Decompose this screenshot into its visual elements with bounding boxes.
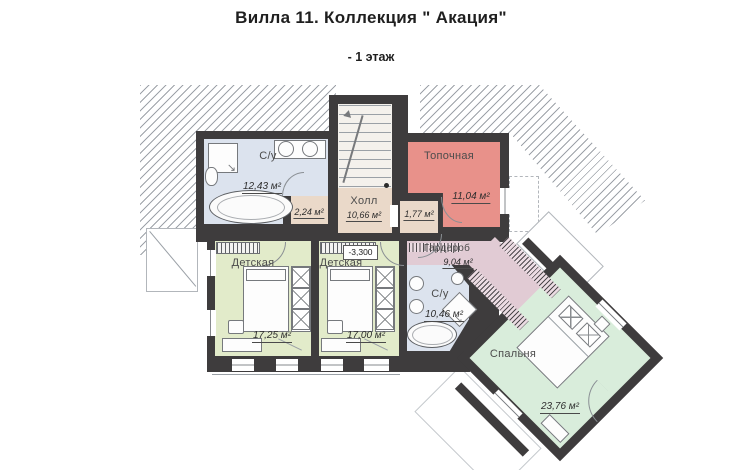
pillow bbox=[246, 269, 286, 281]
chair bbox=[327, 320, 343, 334]
window-sill-line bbox=[212, 374, 400, 375]
window bbox=[276, 359, 298, 371]
toilet-icon bbox=[205, 167, 218, 186]
sink-icon bbox=[302, 141, 318, 157]
bathtub-icon bbox=[407, 321, 457, 348]
window bbox=[205, 310, 216, 336]
wardrobe-cabinet bbox=[375, 266, 395, 332]
room-area-closet-small: 2,24 м² bbox=[293, 207, 324, 219]
door-opening-hall-vestibule bbox=[390, 205, 398, 227]
room-area-bathroom-1: 12,43 м² bbox=[242, 181, 282, 194]
room-area-boiler: 11,04 м² bbox=[451, 191, 490, 204]
room-label-boiler: Топочная bbox=[424, 150, 474, 162]
window bbox=[364, 359, 389, 371]
bed bbox=[243, 266, 289, 332]
room-label-bathroom-2: С/у bbox=[431, 288, 448, 300]
room-label-hall: Холл bbox=[350, 195, 377, 207]
room-area-vestibule: 1,77 м² bbox=[403, 209, 434, 221]
toilet-icon bbox=[451, 272, 464, 285]
wardrobe-cabinet bbox=[291, 266, 311, 332]
room-area-kids-1: 17,25 м² bbox=[252, 330, 292, 343]
floor-plan-page: Вилла 11. Коллекция " Акация" - 1 этаж ↘ bbox=[0, 0, 742, 470]
elevation-mark: -3,300 bbox=[343, 245, 378, 260]
page-title: Вилла 11. Коллекция " Акация" bbox=[0, 8, 742, 28]
pillow bbox=[330, 269, 370, 281]
window bbox=[232, 359, 254, 371]
room-area-bedroom: 23,76 м² bbox=[540, 401, 580, 414]
room-area-kids-2: 17,00 м² bbox=[346, 330, 386, 343]
sink-icon bbox=[278, 141, 294, 157]
room-area-hall: 10,66 м² bbox=[346, 210, 382, 222]
room-area-wardrobe: 9,04 м² bbox=[442, 257, 473, 269]
closet-strip bbox=[216, 242, 260, 254]
sink-icon bbox=[409, 299, 424, 314]
room-label-wardrobe: Гардероб bbox=[424, 243, 470, 254]
room-label-kids-1: Детская bbox=[232, 257, 275, 269]
window bbox=[205, 250, 216, 276]
floor-label: - 1 этаж bbox=[0, 50, 742, 64]
stairs-treads bbox=[339, 105, 391, 188]
pillow bbox=[558, 305, 583, 330]
room-label-bedroom: Спальня bbox=[490, 348, 536, 360]
stairs-dot bbox=[384, 183, 389, 188]
bathtub-icon bbox=[209, 190, 293, 224]
window bbox=[321, 359, 343, 371]
door-opening-boiler-exterior bbox=[500, 188, 510, 214]
shower-arrow-icon: ↘ bbox=[227, 161, 236, 174]
chair bbox=[228, 320, 244, 334]
room-label-bathroom-1: С/у bbox=[259, 150, 276, 162]
sink-icon bbox=[409, 276, 424, 291]
room-area-bathroom-2: 10,46 м² bbox=[424, 309, 464, 322]
